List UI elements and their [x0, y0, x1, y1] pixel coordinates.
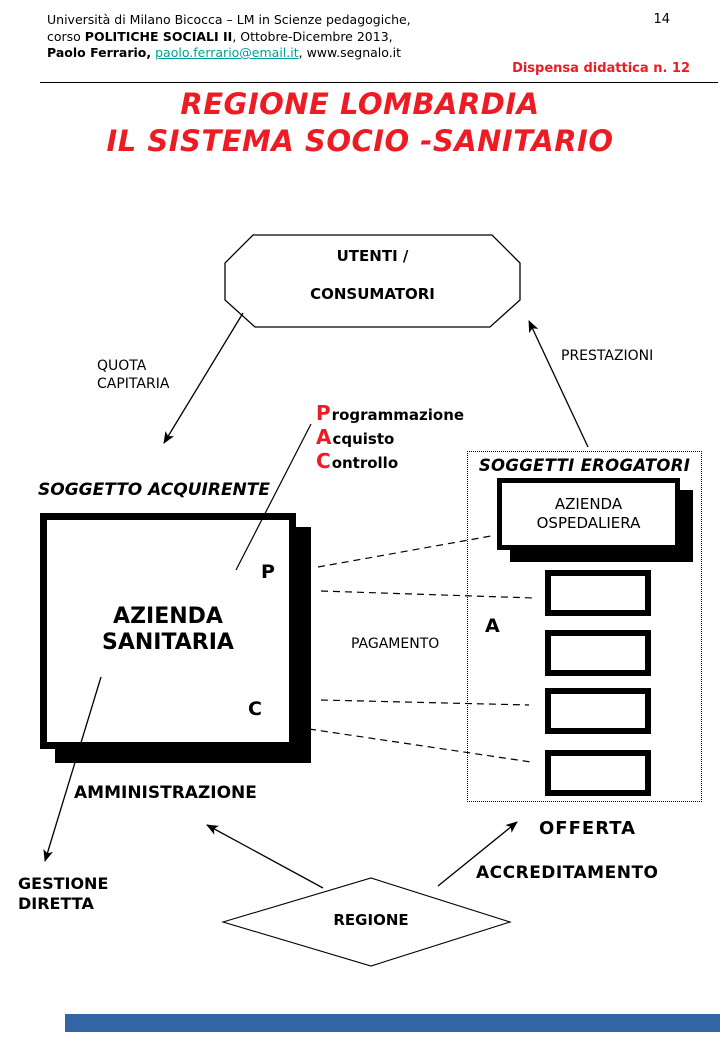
arrow-regione-to-amministrazione [207, 825, 323, 888]
gestione-line2: DIRETTA [18, 894, 108, 914]
amministrazione-label: AMMINISTRAZIONE [74, 783, 257, 803]
azienda-sanitaria-label: AZIENDA SANITARIA [47, 604, 289, 656]
offerta-label: OFFERTA [539, 818, 636, 839]
letter-p: P [261, 561, 275, 583]
pac-rest-controllo: ontrollo [332, 454, 398, 472]
utenti-line2: CONSUMATORI [225, 285, 520, 303]
erogatore-slot-2 [545, 630, 651, 676]
pac-rest-acquisto: cquisto [332, 430, 394, 448]
erogatore-slot-1 [545, 570, 651, 616]
azienda-sanitaria-line2: SANITARIA [47, 630, 289, 656]
erogatore-slot-4 [545, 750, 651, 796]
pac-item-programmazione: Programmazione [316, 401, 464, 425]
gestione-line1: GESTIONE [18, 874, 108, 894]
pac-item-controllo: Controllo [316, 449, 464, 473]
quota-line2: CAPITARIA [97, 376, 169, 394]
quota-line1: QUOTA [97, 358, 169, 376]
header-line3-suffix: , www.segnalo.it [299, 45, 401, 60]
soggetti-erogatori-label: SOGGETTI EROGATORI [467, 456, 702, 475]
utenti-line1: UTENTI / [225, 247, 520, 265]
erogatore-slot-3 [545, 688, 651, 734]
header-line2-suffix: , Ottobre-Dicembre 2013, [232, 29, 392, 44]
header-line2: corso POLITICHE SOCIALI II, Ottobre-Dice… [47, 29, 411, 46]
arrow-quota-capitaria [164, 313, 243, 443]
pagamento-label: PAGAMENTO [351, 636, 439, 654]
author-name: Paolo Ferrario, [47, 45, 151, 60]
header-line2-course: POLITICHE SOCIALI II [85, 29, 233, 44]
gestione-diretta-label: GESTIONE DIRETTA [18, 874, 108, 914]
header-line2-prefix: corso [47, 29, 85, 44]
pac-rest-programmazione: rogrammazione [332, 406, 464, 424]
accreditamento-label: ACCREDITAMENTO [476, 863, 659, 883]
page-header: Università di Milano Bicocca – LM in Sci… [47, 12, 411, 62]
dispensa-badge: Dispensa didattica n. 12 [512, 61, 690, 76]
dashed-link-1 [318, 536, 491, 567]
prestazioni-label: PRESTAZIONI [561, 348, 653, 366]
title-line2: IL SISTEMA SOCIO -SANITARIO [0, 123, 720, 160]
azienda-sanitaria-line1: AZIENDA [47, 604, 289, 630]
letter-c: C [248, 698, 262, 720]
arrow-prestazioni [529, 321, 588, 447]
azienda-ospedaliera-line1: AZIENDA [537, 495, 641, 514]
pac-initial-c: C [316, 449, 331, 473]
header-line3: Paolo Ferrario, paolo.ferrario@email.it,… [47, 45, 411, 62]
header-rule [40, 82, 718, 83]
title-line1: REGIONE LOMBARDIA [0, 86, 720, 123]
pac-list: Programmazione Acquisto Controllo [316, 401, 464, 473]
document-page: Università di Milano Bicocca – LM in Sci… [0, 0, 720, 1040]
page-number: 14 [653, 12, 670, 27]
azienda-ospedaliera-label: AZIENDA OSPEDALIERA [537, 495, 641, 533]
page-title: REGIONE LOMBARDIA IL SISTEMA SOCIO -SANI… [0, 86, 720, 160]
pac-item-acquisto: Acquisto [316, 425, 464, 449]
azienda-ospedaliera-box: AZIENDA OSPEDALIERA [497, 478, 680, 550]
email-link[interactable]: paolo.ferrario@email.it [155, 45, 299, 60]
header-line1: Università di Milano Bicocca – LM in Sci… [47, 12, 411, 29]
azienda-ospedaliera-line2: OSPEDALIERA [537, 514, 641, 533]
regione-label: REGIONE [271, 911, 471, 929]
pac-initial-a: A [316, 425, 331, 449]
pac-initial-p: P [316, 401, 331, 425]
quota-capitaria-label: QUOTA CAPITARIA [97, 358, 169, 393]
letter-a: A [485, 615, 500, 637]
footer-bar [65, 1014, 720, 1032]
soggetto-acquirente-label: SOGGETTO ACQUIRENTE [38, 480, 270, 500]
